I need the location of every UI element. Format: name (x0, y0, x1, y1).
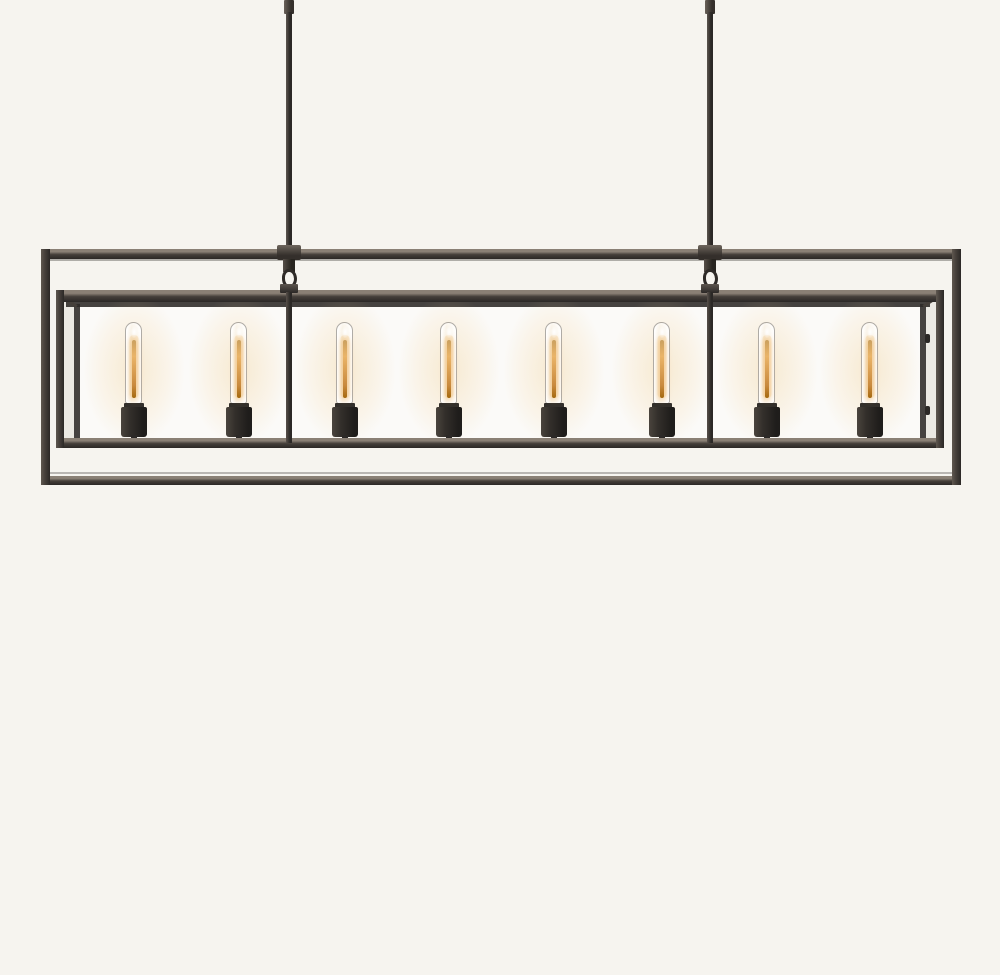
outer-frame-bottom-bar (41, 476, 961, 485)
rod-assembly (680, 0, 740, 445)
bulb-filament (765, 340, 769, 398)
hang-rod (286, 12, 292, 250)
bulb-assembly (399, 0, 499, 460)
glassbox-divider-post (707, 292, 713, 443)
glassbox-door-hinge (925, 334, 930, 343)
bulb-socket (121, 407, 147, 437)
glassbox-left-post (56, 290, 64, 448)
bulb-glass (440, 322, 457, 404)
bulb-tip-highlight (763, 326, 770, 338)
glassbox-bottom-rail (56, 438, 944, 448)
bulb-socket (332, 407, 358, 437)
glassbox-left-side-glass (64, 302, 74, 438)
bulb-tip-highlight (341, 326, 348, 338)
bulb-glass (545, 322, 562, 404)
glassbox-divider-post (286, 292, 292, 443)
bulb-tip-highlight (658, 326, 665, 338)
bulb-tip-highlight (866, 326, 873, 338)
glassbox-right-post (936, 290, 944, 448)
rod-clamp (698, 245, 722, 260)
bulb-glass (336, 322, 353, 404)
bulb-filament (660, 340, 664, 398)
bulb-assembly (820, 0, 920, 460)
bulb-socket (857, 407, 883, 437)
glassbox-back-left-post (74, 304, 80, 438)
outer-frame-back-bottom-edge (50, 472, 952, 474)
rod-assembly (259, 0, 319, 445)
bulb-assembly (504, 0, 604, 460)
glassbox-top-rail (56, 290, 944, 302)
rod-clamp (277, 245, 301, 260)
bulb-filament (552, 340, 556, 398)
bulb-tip-highlight (235, 326, 242, 338)
bulb-glass (861, 322, 878, 404)
glassbox-right-side-glass (926, 302, 936, 438)
bulb-socket (226, 407, 252, 437)
bulb-filament (447, 340, 451, 398)
bulb-tip-highlight (130, 326, 137, 338)
bulb-filament (237, 340, 241, 398)
outer-frame-left-bar (41, 249, 50, 485)
bulb-socket (436, 407, 462, 437)
bulb-tip-highlight (445, 326, 452, 338)
hang-rod (707, 12, 713, 250)
bulb-socket (649, 407, 675, 437)
outer-frame-right-bar (952, 249, 961, 485)
product-photo (0, 0, 1000, 975)
bulb-filament (132, 340, 136, 398)
glassbox-back-right-post (920, 304, 926, 438)
outer-frame-back-top-edge (50, 259, 952, 261)
bulb-glass (653, 322, 670, 404)
bulb-filament (343, 340, 347, 398)
bulb-filament (868, 340, 872, 398)
bulb-socket (541, 407, 567, 437)
outer-frame-top-bar (41, 249, 961, 259)
bulb-assembly (84, 0, 184, 460)
glassbox-door-hinge (925, 406, 930, 415)
bulb-glass (125, 322, 142, 404)
bulb-tip-highlight (550, 326, 557, 338)
bulb-glass (758, 322, 775, 404)
bulb-glass (230, 322, 247, 404)
bulb-socket (754, 407, 780, 437)
